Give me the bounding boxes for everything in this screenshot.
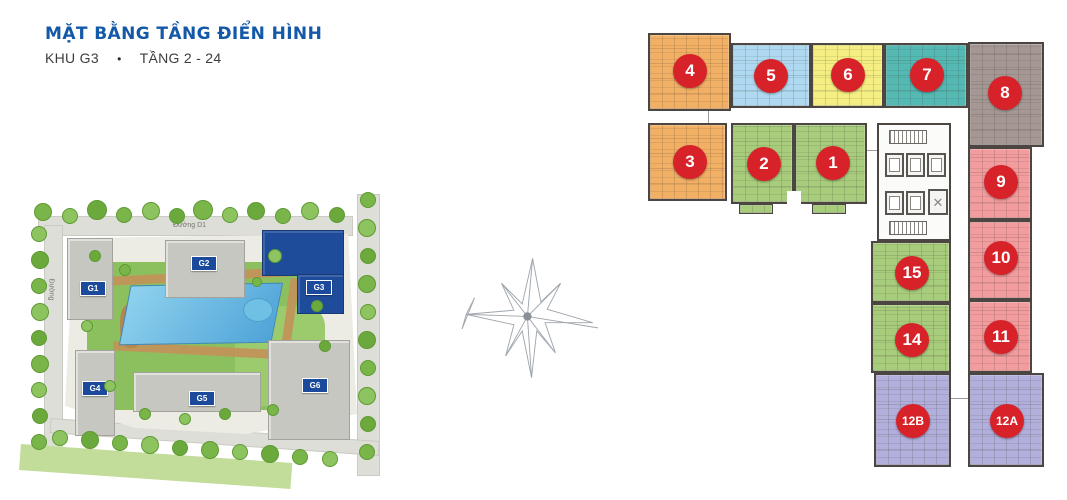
- tree-icon: [360, 360, 376, 376]
- tree-icon: [311, 300, 323, 312]
- elevator-icon: [927, 153, 946, 177]
- tree-icon: [31, 355, 49, 373]
- stair-icon: [889, 221, 927, 235]
- tree-icon: [268, 249, 282, 263]
- tree-icon: [31, 330, 47, 346]
- tree-icon: [104, 380, 116, 392]
- unit-badge-12b: 12B: [896, 404, 930, 438]
- tree-icon: [360, 304, 376, 320]
- tree-icon: [193, 200, 213, 220]
- tree-icon: [222, 207, 238, 223]
- unit-badge-15: 15: [895, 256, 929, 290]
- tree-icon: [31, 251, 49, 269]
- tree-icon: [139, 408, 151, 420]
- page-title: MẶT BẰNG TẦNG ĐIỂN HÌNH: [45, 24, 322, 44]
- tree-icon: [319, 340, 331, 352]
- tree-icon: [112, 435, 128, 451]
- tree-icon: [329, 207, 345, 223]
- stair-icon: [889, 130, 927, 144]
- tree-icon: [31, 434, 47, 450]
- unit-badge-6: 6: [831, 58, 865, 92]
- tree-icon: [201, 441, 219, 459]
- tree-icon: [247, 202, 265, 220]
- tree-icon: [261, 445, 279, 463]
- tree-icon: [322, 451, 338, 467]
- subtitle-area: KHU G3: [45, 50, 99, 66]
- tree-icon: [359, 444, 375, 460]
- tree-icon: [219, 408, 231, 420]
- tree-icon: [87, 200, 107, 220]
- tree-icon: [172, 440, 188, 456]
- elevator-icon: ✕: [928, 189, 948, 215]
- connector-line: [708, 111, 709, 123]
- building-label-g3: G3: [306, 280, 332, 295]
- unit-badge-7: 7: [910, 58, 944, 92]
- elevator-icon: [885, 153, 904, 177]
- tree-icon: [358, 331, 376, 349]
- tree-icon: [301, 202, 319, 220]
- tree-icon: [275, 208, 291, 224]
- unit-badge-12a: 12A: [990, 404, 1024, 438]
- core-block: ✕: [877, 123, 951, 241]
- tree-icon: [360, 416, 376, 432]
- tree-icon: [119, 264, 131, 276]
- tree-icon: [31, 303, 49, 321]
- connector-line: [951, 398, 968, 399]
- elevator-icon: [906, 191, 925, 215]
- unit-badge-8: 8: [988, 76, 1022, 110]
- bullet-separator: •: [117, 52, 122, 66]
- tree-icon: [267, 404, 279, 416]
- header: MẶT BẰNG TẦNG ĐIỂN HÌNH KHU G3 • TẦNG 2 …: [45, 24, 322, 66]
- road-left-label: Đường: [48, 278, 55, 300]
- unit-badge-4: 4: [673, 54, 707, 88]
- tree-icon: [358, 219, 376, 237]
- tree-icon: [81, 431, 99, 449]
- unit-badge-3: 3: [673, 145, 707, 179]
- tree-icon: [232, 444, 248, 460]
- tree-icon: [32, 408, 48, 424]
- tree-icon: [252, 277, 262, 287]
- floor-plan: ✕ 4567832191011151412B12A: [640, 25, 1066, 477]
- unit-badge-9: 9: [984, 165, 1018, 199]
- unit-2-balcony: [739, 204, 773, 214]
- page-subtitle: KHU G3 • TẦNG 2 - 24: [45, 50, 322, 66]
- unit-1-balcony: [812, 204, 846, 214]
- tree-icon: [52, 430, 68, 446]
- unit-badge-5: 5: [754, 59, 788, 93]
- compass-rose-icon: [460, 252, 600, 384]
- tree-icon: [179, 413, 191, 425]
- tree-icon: [292, 449, 308, 465]
- tree-icon: [169, 208, 185, 224]
- unit-badge-11: 11: [984, 320, 1018, 354]
- building-label-g6: G6: [302, 378, 328, 393]
- tree-icon: [116, 207, 132, 223]
- tree-icon: [31, 382, 47, 398]
- unit-badge-2: 2: [747, 147, 781, 181]
- building-g1: [67, 238, 113, 320]
- tree-icon: [89, 250, 101, 262]
- tree-icon: [31, 278, 47, 294]
- tree-icon: [360, 248, 376, 264]
- tree-icon: [360, 192, 376, 208]
- tree-icon: [142, 202, 160, 220]
- tree-icon: [358, 275, 376, 293]
- small-pond: [243, 298, 273, 322]
- tree-icon: [31, 226, 47, 242]
- unit-badge-1: 1: [816, 146, 850, 180]
- connector-line: [867, 150, 877, 151]
- site-plan: Đường D1 Đường G1G2G3G4G5G6: [25, 186, 435, 486]
- tree-icon: [62, 208, 78, 224]
- balcony-notch: [787, 191, 801, 206]
- tree-icon: [81, 320, 93, 332]
- tree-icon: [141, 436, 159, 454]
- unit-badge-14: 14: [895, 323, 929, 357]
- building-label-g5: G5: [189, 391, 215, 406]
- building-label-g1: G1: [80, 281, 106, 296]
- tree-icon: [358, 387, 376, 405]
- tree-icon: [34, 203, 52, 221]
- elevator-icon: [885, 191, 904, 215]
- subtitle-floors: TẦNG 2 - 24: [140, 50, 222, 66]
- unit-badge-10: 10: [984, 241, 1018, 275]
- elevator-icon: [906, 153, 925, 177]
- building-label-g2: G2: [191, 256, 217, 271]
